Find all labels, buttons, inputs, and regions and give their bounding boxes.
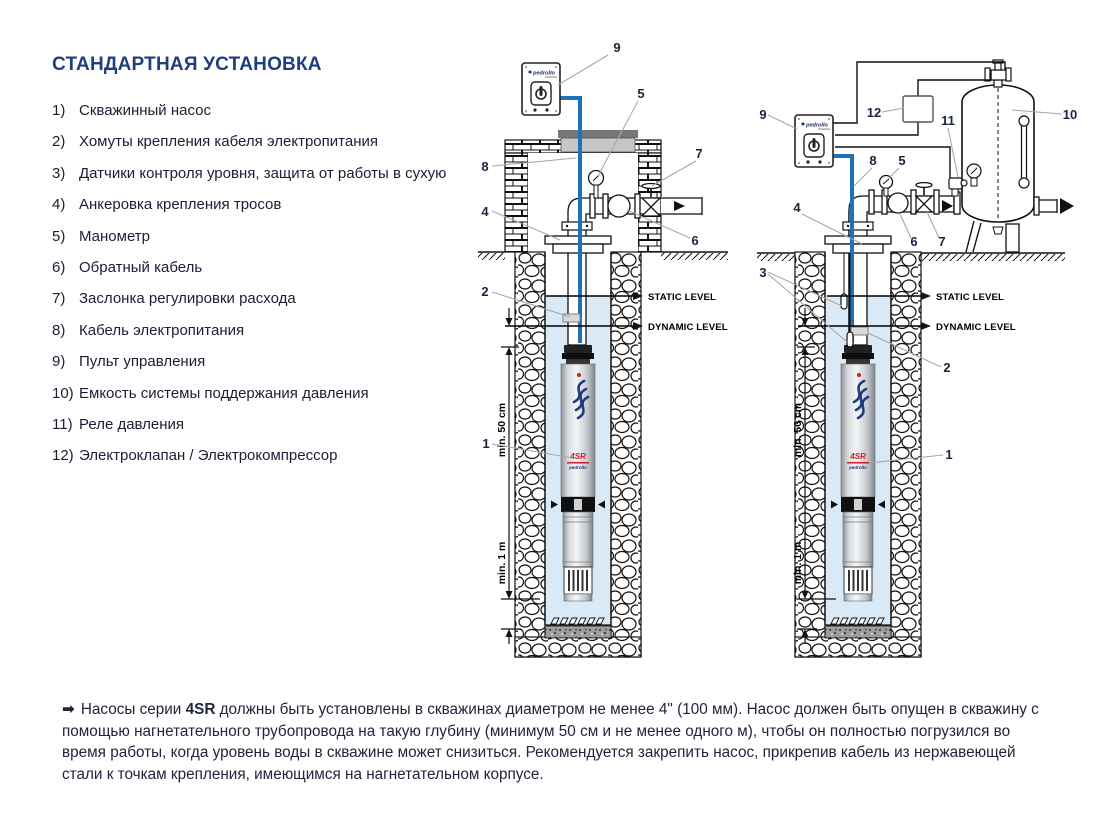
legend-list: 1)Скважинный насос 2)Хомуты крепления ка… (52, 102, 482, 479)
valve-handle (642, 184, 660, 189)
legend-item-label: Кабель электропитания (79, 322, 482, 340)
cable-clamp (851, 327, 868, 335)
valve-handle (916, 183, 932, 188)
callout-8: 8 (481, 159, 488, 174)
right-diagram: STATIC LEVEL DYNAMIC LEVEL min. 50 cm mi… (757, 60, 1077, 657)
legend-item-11: 11)Реле давления (52, 416, 482, 434)
static-level-label: STATIC LEVEL (648, 292, 716, 303)
legend-item-label: Пульт управления (79, 353, 482, 371)
legend-item-label: Электроклапан / Электрокомпрессор (79, 447, 482, 465)
note-series: 4SR (186, 701, 216, 718)
ground-hatch (478, 253, 505, 260)
legend-item-number: 1) (52, 102, 79, 120)
level-arrow-icon (921, 292, 931, 300)
callout-5: 5 (637, 86, 644, 101)
legend-item-label: Скважинный насос (79, 102, 482, 120)
level-arrow-icon (921, 322, 931, 330)
check-valve (608, 195, 630, 217)
legend-item-number: 3) (52, 165, 79, 183)
installation-note: ➡Насосы серии 4SR должны быть установлен… (62, 699, 1050, 785)
legend-item-number: 6) (52, 259, 79, 277)
legend-item-label: Хомуты крепления кабеля электропитания (79, 133, 482, 151)
callout-2: 2 (943, 360, 950, 375)
legend-item-number: 7) (52, 290, 79, 308)
callout-10: 10 (1063, 107, 1077, 122)
legend-item-4: 4)Анкеровка крепления тросов (52, 196, 482, 214)
note-arrow-icon: ➡ (62, 701, 75, 718)
legend-item-9: 9)Пульт управления (52, 353, 482, 371)
legend-item-number: 8) (52, 322, 79, 340)
legend-item-2: 2)Хомуты крепления кабеля электропитания (52, 133, 482, 151)
page-title: СТАНДАРТНАЯ УСТАНОВКА (52, 54, 322, 76)
callout-4: 4 (793, 200, 801, 215)
legend-item-label: Анкеровка крепления тросов (79, 196, 482, 214)
tank-leg-right (1006, 224, 1019, 252)
tank-leg-left (966, 221, 981, 252)
callout-11: 11 (941, 113, 955, 128)
legend-item-12: 12)Электроклапан / Электрокомпрессор (52, 447, 482, 465)
callout-1: 1 (482, 436, 489, 451)
callout-1: 1 (945, 447, 952, 462)
legend-item-8: 8)Кабель электропитания (52, 322, 482, 340)
electrovalve-box (903, 96, 933, 122)
pressure-tank (962, 60, 1074, 252)
anchor-base (825, 222, 891, 253)
min-1m-label: min. 1 m (792, 542, 804, 585)
legend-item-number: 10) (52, 385, 79, 403)
legend-item-7: 7)Заслонка регулировки расхода (52, 290, 482, 308)
legend-item-label: Обратный кабель (79, 259, 482, 277)
legend-item-label: Реле давления (79, 416, 482, 434)
legend-item-number: 9) (52, 353, 79, 371)
tank-drain (993, 227, 1003, 234)
legend-item-number: 2) (52, 133, 79, 151)
callout-9: 9 (613, 40, 620, 55)
callout-12: 12 (867, 105, 881, 120)
callout-9: 9 (759, 107, 766, 122)
callout-6: 6 (691, 233, 698, 248)
note-lead: Насосы серии (81, 701, 182, 718)
callout-6: 6 (910, 234, 917, 249)
check-valve (888, 193, 908, 213)
legend-item-1: 1)Скважинный насос (52, 102, 482, 120)
legend-item-number: 4) (52, 196, 79, 214)
legend-item-label: Емкость системы поддержания давления (79, 385, 482, 403)
legend-item-number: 5) (52, 228, 79, 246)
callout-8: 8 (869, 153, 876, 168)
min-50cm-label: min. 50 cm (496, 403, 508, 457)
callout-2: 2 (481, 284, 488, 299)
callout-3: 3 (759, 265, 766, 280)
legend-item-label: Манометр (79, 228, 482, 246)
legend-item-number: 11) (52, 416, 79, 434)
legend-item-3: 3)Датчики контроля уровня, защита от раб… (52, 165, 482, 183)
tank-top-valve (985, 60, 1011, 87)
legend-item-number: 12) (52, 447, 79, 465)
legend-item-label: Заслонка регулировки расхода (79, 290, 482, 308)
installation-diagrams: 4SR pedrollo (478, 35, 1095, 675)
legend-item-6: 6)Обратный кабель (52, 259, 482, 277)
callout-7: 7 (695, 146, 702, 161)
dynamic-level-label: DYNAMIC LEVEL (936, 322, 1016, 333)
callout-4: 4 (481, 204, 489, 219)
static-level-label: STATIC LEVEL (936, 292, 1004, 303)
surface-piping (869, 176, 960, 215)
left-diagram: STATIC LEVEL DYNAMIC LEVEL min. 50 cm mi… (478, 40, 728, 657)
min-1m-label: min. 1 m (496, 542, 508, 585)
pit-cover-slab (558, 130, 638, 138)
callout-7: 7 (938, 234, 945, 249)
legend-item-label: Датчики контроля уровня, защита от работ… (79, 165, 482, 183)
legend-item-5: 5)Манометр (52, 228, 482, 246)
dynamic-level-label: DYNAMIC LEVEL (648, 322, 728, 333)
callout-5: 5 (898, 153, 905, 168)
legend-item-10: 10)Емкость системы поддержания давления (52, 385, 482, 403)
outlet-arrow-icon (1060, 198, 1074, 214)
min-50cm-label: min. 50 cm (792, 403, 804, 457)
